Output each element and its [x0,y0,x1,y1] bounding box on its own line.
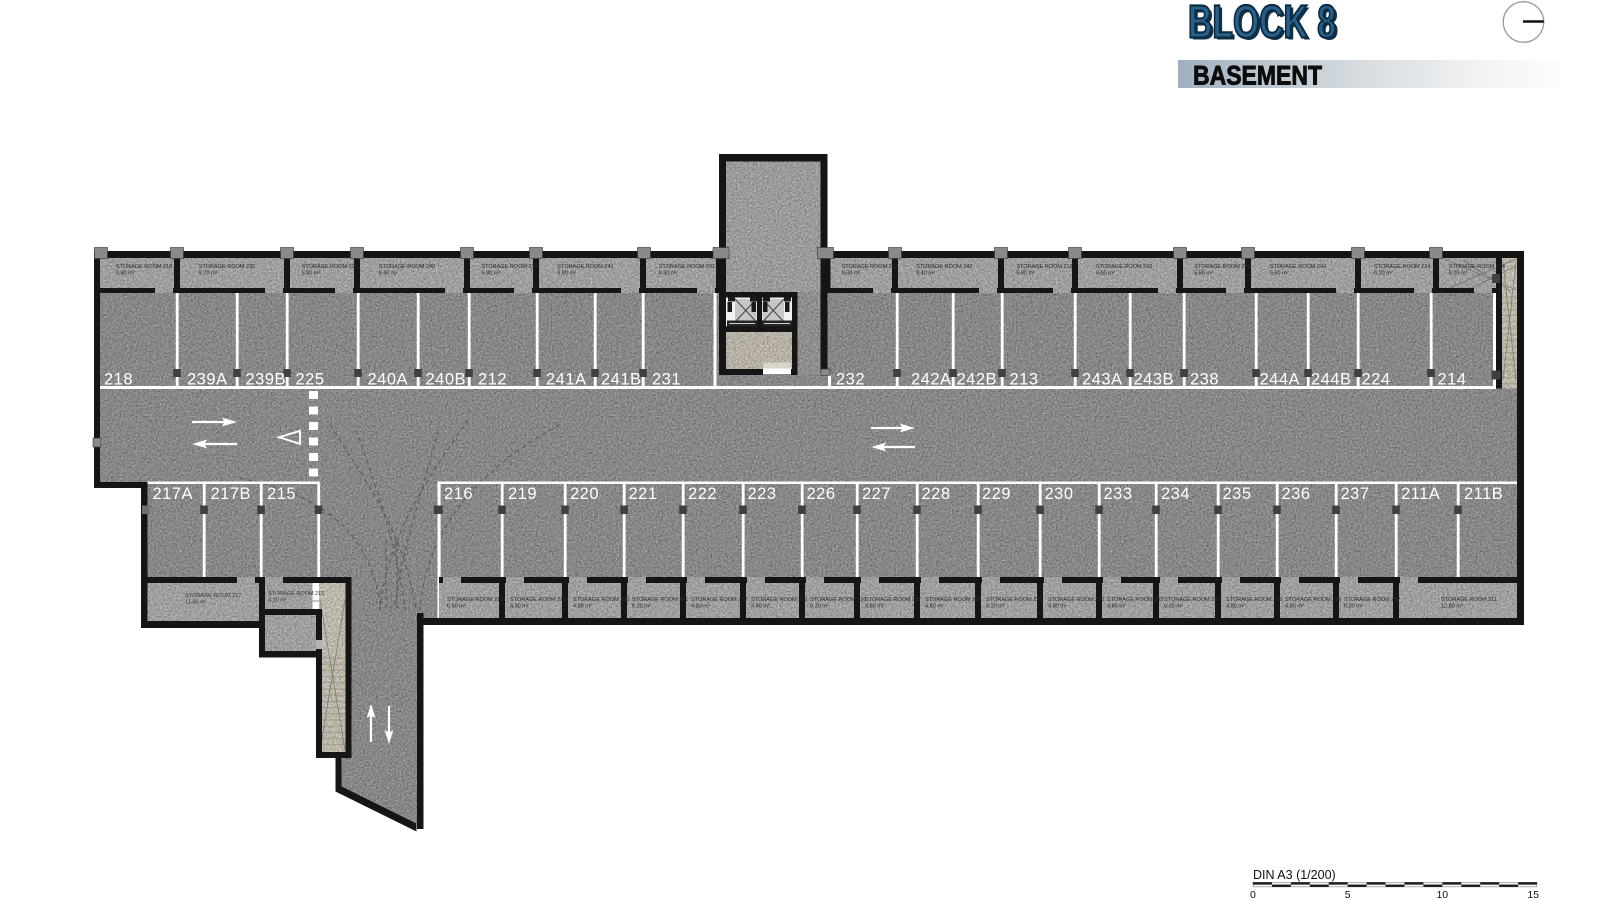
svg-text:9.60 m²: 9.60 m² [1096,271,1115,277]
svg-text:STORAGE ROOM 242: STORAGE ROOM 242 [916,264,972,270]
svg-text:215: 215 [267,485,296,503]
svg-text:5.80 m²: 5.80 m² [1016,271,1035,277]
svg-text:0: 0 [1250,889,1256,900]
svg-text:STORAGE ROOM 239: STORAGE ROOM 239 [199,264,255,270]
svg-text:6.20 m²: 6.20 m² [1344,604,1363,610]
svg-text:STORAGE ROOM 228: STORAGE ROOM 228 [925,597,981,603]
svg-text:6.50 m²: 6.50 m² [447,604,466,610]
svg-text:9.40 m²: 9.40 m² [916,271,935,277]
svg-text:237: 237 [1341,485,1370,503]
svg-text:5.80 m²: 5.80 m² [1194,271,1213,277]
svg-text:225: 225 [296,370,325,388]
svg-text:6.20 m²: 6.20 m² [986,604,1005,610]
svg-text:5.80 m²: 5.80 m² [302,271,321,277]
svg-text:4.80 m²: 4.80 m² [691,604,710,610]
svg-text:BASEMENT: BASEMENT [1193,61,1322,91]
svg-text:15: 15 [1527,889,1539,900]
svg-text:211B: 211B [1464,485,1503,503]
svg-text:6.80 m²: 6.80 m² [116,271,135,277]
svg-text:STORAGE ROOM 211: STORAGE ROOM 211 [1441,597,1497,603]
svg-text:STORAGE ROOM 230: STORAGE ROOM 230 [1048,597,1104,603]
svg-text:STORAGE ROOM 243: STORAGE ROOM 243 [1096,264,1152,270]
svg-text:217B: 217B [211,485,252,503]
svg-text:232: 232 [836,370,865,388]
svg-text:9.60 m²: 9.60 m² [1270,271,1289,277]
svg-text:STORAGE ROOM 216: STORAGE ROOM 216 [447,597,503,603]
svg-text:10: 10 [1436,889,1448,900]
svg-text:241A: 241A [546,370,587,388]
svg-text:223: 223 [748,485,777,503]
svg-text:6.20 m²: 6.20 m² [1374,271,1393,277]
svg-text:242A: 242A [911,370,952,388]
svg-text:STORAGE ROOM 212: STORAGE ROOM 212 [481,264,537,270]
svg-text:226: 226 [807,485,836,503]
svg-text:231: 231 [652,370,681,388]
svg-text:STORAGE ROOM 231: STORAGE ROOM 231 [659,264,715,270]
svg-text:233: 233 [1104,485,1133,503]
svg-text:244A: 244A [1260,370,1301,388]
svg-text:218: 218 [104,370,133,388]
svg-text:STORAGE ROOM 217: STORAGE ROOM 217 [185,593,241,599]
svg-text:4.80 m²: 4.80 m² [1048,604,1067,610]
svg-text:4.80 m²: 4.80 m² [1226,604,1245,610]
svg-text:4.80 m²: 4.80 m² [925,604,944,610]
svg-text:STORAGE ROOM 233: STORAGE ROOM 233 [1107,597,1163,603]
svg-text:236: 236 [1282,485,1311,503]
svg-text:239B: 239B [246,370,287,388]
svg-text:240A: 240A [368,370,409,388]
svg-text:STORAGE ROOM 229: STORAGE ROOM 229 [986,597,1042,603]
svg-text:STORAGE ROOM 244: STORAGE ROOM 244 [1270,264,1326,270]
svg-text:STORAGE ROOM 232: STORAGE ROOM 232 [842,264,898,270]
svg-text:STORAGE ROOM 213: STORAGE ROOM 213 [1016,264,1072,270]
svg-text:6.30 m²: 6.30 m² [659,271,678,277]
svg-text:216: 216 [444,485,473,503]
svg-text:5.80 m²: 5.80 m² [481,271,500,277]
svg-text:243A: 243A [1082,370,1123,388]
svg-text:5.20 m²: 5.20 m² [1449,271,1468,277]
svg-text:11.90 m²: 11.90 m² [185,600,206,606]
svg-text:STORAGE ROOM 225: STORAGE ROOM 225 [302,264,358,270]
svg-text:STORAGE ROOM 234: STORAGE ROOM 234 [1164,597,1220,603]
svg-text:217A: 217A [153,485,194,503]
svg-text:6.30 m²: 6.30 m² [842,271,861,277]
svg-text:239A: 239A [187,370,228,388]
svg-text:244B: 244B [1311,370,1352,388]
svg-text:240B: 240B [426,370,467,388]
svg-text:STORAGE ROOM 222: STORAGE ROOM 222 [691,597,747,603]
svg-text:214: 214 [1438,370,1467,388]
svg-text:STORAGE ROOM 224: STORAGE ROOM 224 [1374,264,1430,270]
svg-text:STORAGE ROOM 220: STORAGE ROOM 220 [573,597,629,603]
svg-text:219: 219 [508,485,537,503]
svg-text:4.80 m²: 4.80 m² [1107,604,1126,610]
svg-text:4.80 m²: 4.80 m² [865,604,884,610]
svg-text:STORAGE ROOM 219: STORAGE ROOM 219 [510,597,566,603]
svg-text:9.60 m²: 9.60 m² [379,271,398,277]
svg-text:STORAGE ROOM 237: STORAGE ROOM 237 [1344,597,1400,603]
svg-text:235: 235 [1223,485,1252,503]
svg-text:STORAGE ROOM 240: STORAGE ROOM 240 [379,264,435,270]
svg-text:STORAGE ROOM 223: STORAGE ROOM 223 [751,597,807,603]
svg-text:5: 5 [1345,889,1351,900]
svg-text:211A: 211A [1401,485,1440,503]
svg-text:STORAGE ROOM 226: STORAGE ROOM 226 [810,597,866,603]
svg-text:6.20 m²: 6.20 m² [632,604,651,610]
svg-text:220: 220 [570,485,599,503]
svg-text:6.20 m²: 6.20 m² [1164,604,1183,610]
svg-text:4.80 m²: 4.80 m² [1285,604,1304,610]
svg-text:228: 228 [922,485,951,503]
svg-text:STORAGE ROOM 241: STORAGE ROOM 241 [557,264,613,270]
svg-text:229: 229 [982,485,1011,503]
svg-text:222: 222 [688,485,717,503]
svg-text:STORAGE ROOM 227: STORAGE ROOM 227 [865,597,921,603]
svg-text:234: 234 [1161,485,1190,503]
svg-text:4.80 m²: 4.80 m² [510,604,529,610]
svg-text:STORAGE ROOM 236: STORAGE ROOM 236 [1285,597,1341,603]
svg-text:4.80 m²: 4.80 m² [573,604,592,610]
svg-text:STORAGE ROOM 238: STORAGE ROOM 238 [1194,264,1250,270]
svg-text:12.80 m²: 12.80 m² [1441,604,1463,610]
svg-text:6.20 m²: 6.20 m² [810,604,829,610]
svg-text:242B: 242B [957,370,998,388]
svg-text:9.70 m²: 9.70 m² [199,271,218,277]
svg-text:DIN A3 (1/200): DIN A3 (1/200) [1253,868,1336,882]
svg-text:9.60 m²: 9.60 m² [557,271,576,277]
svg-text:STORAGE ROOM 221: STORAGE ROOM 221 [632,597,688,603]
svg-text:4.80 m²: 4.80 m² [751,604,770,610]
svg-text:224: 224 [1362,370,1391,388]
svg-text:227: 227 [862,485,891,503]
svg-text:212: 212 [478,370,507,388]
svg-text:213: 213 [1010,370,1039,388]
svg-text:STORAGE ROOM 215: STORAGE ROOM 215 [268,591,324,597]
svg-text:238: 238 [1190,370,1219,388]
svg-text:STORAGE ROOM 214: STORAGE ROOM 214 [1449,264,1505,270]
svg-text:BLOCK 8: BLOCK 8 [1188,0,1336,48]
svg-text:243B: 243B [1134,370,1175,388]
svg-text:STORAGE ROOM 218: STORAGE ROOM 218 [116,264,172,270]
svg-text:STORAGE ROOM 235: STORAGE ROOM 235 [1226,597,1282,603]
svg-text:4.20 m²: 4.20 m² [268,598,287,604]
svg-text:241B: 241B [601,370,642,388]
svg-text:230: 230 [1045,485,1074,503]
svg-text:221: 221 [629,485,658,503]
